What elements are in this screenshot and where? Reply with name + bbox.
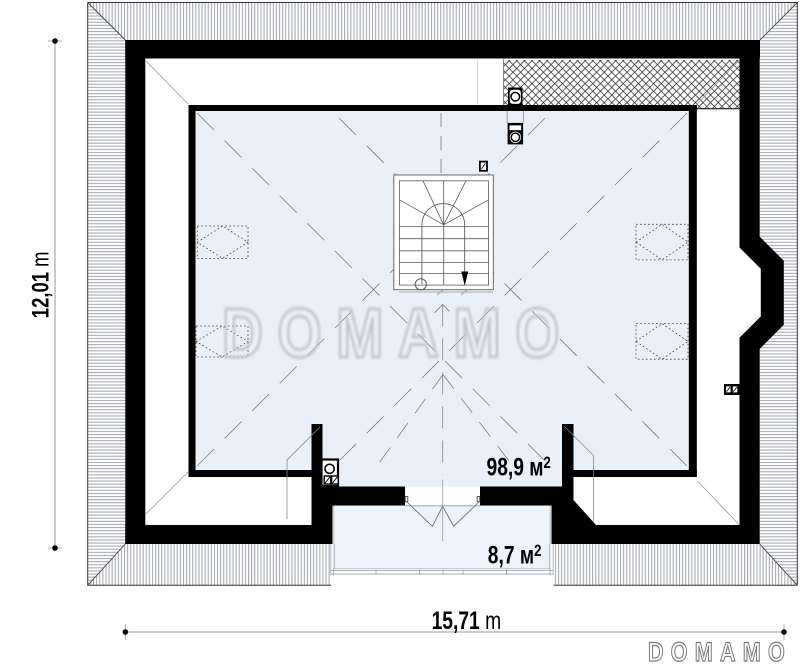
svg-text:15,71 m: 15,71 m: [432, 607, 502, 635]
svg-text:12,01 m: 12,01 m: [27, 251, 54, 318]
svg-text:98,9 м2: 98,9 м2: [487, 453, 551, 481]
svg-text:8,7 м2: 8,7 м2: [488, 541, 542, 569]
svg-text:DOMAMO: DOMAMO: [648, 638, 792, 668]
svg-text:DOMAMO: DOMAMO: [222, 294, 574, 372]
